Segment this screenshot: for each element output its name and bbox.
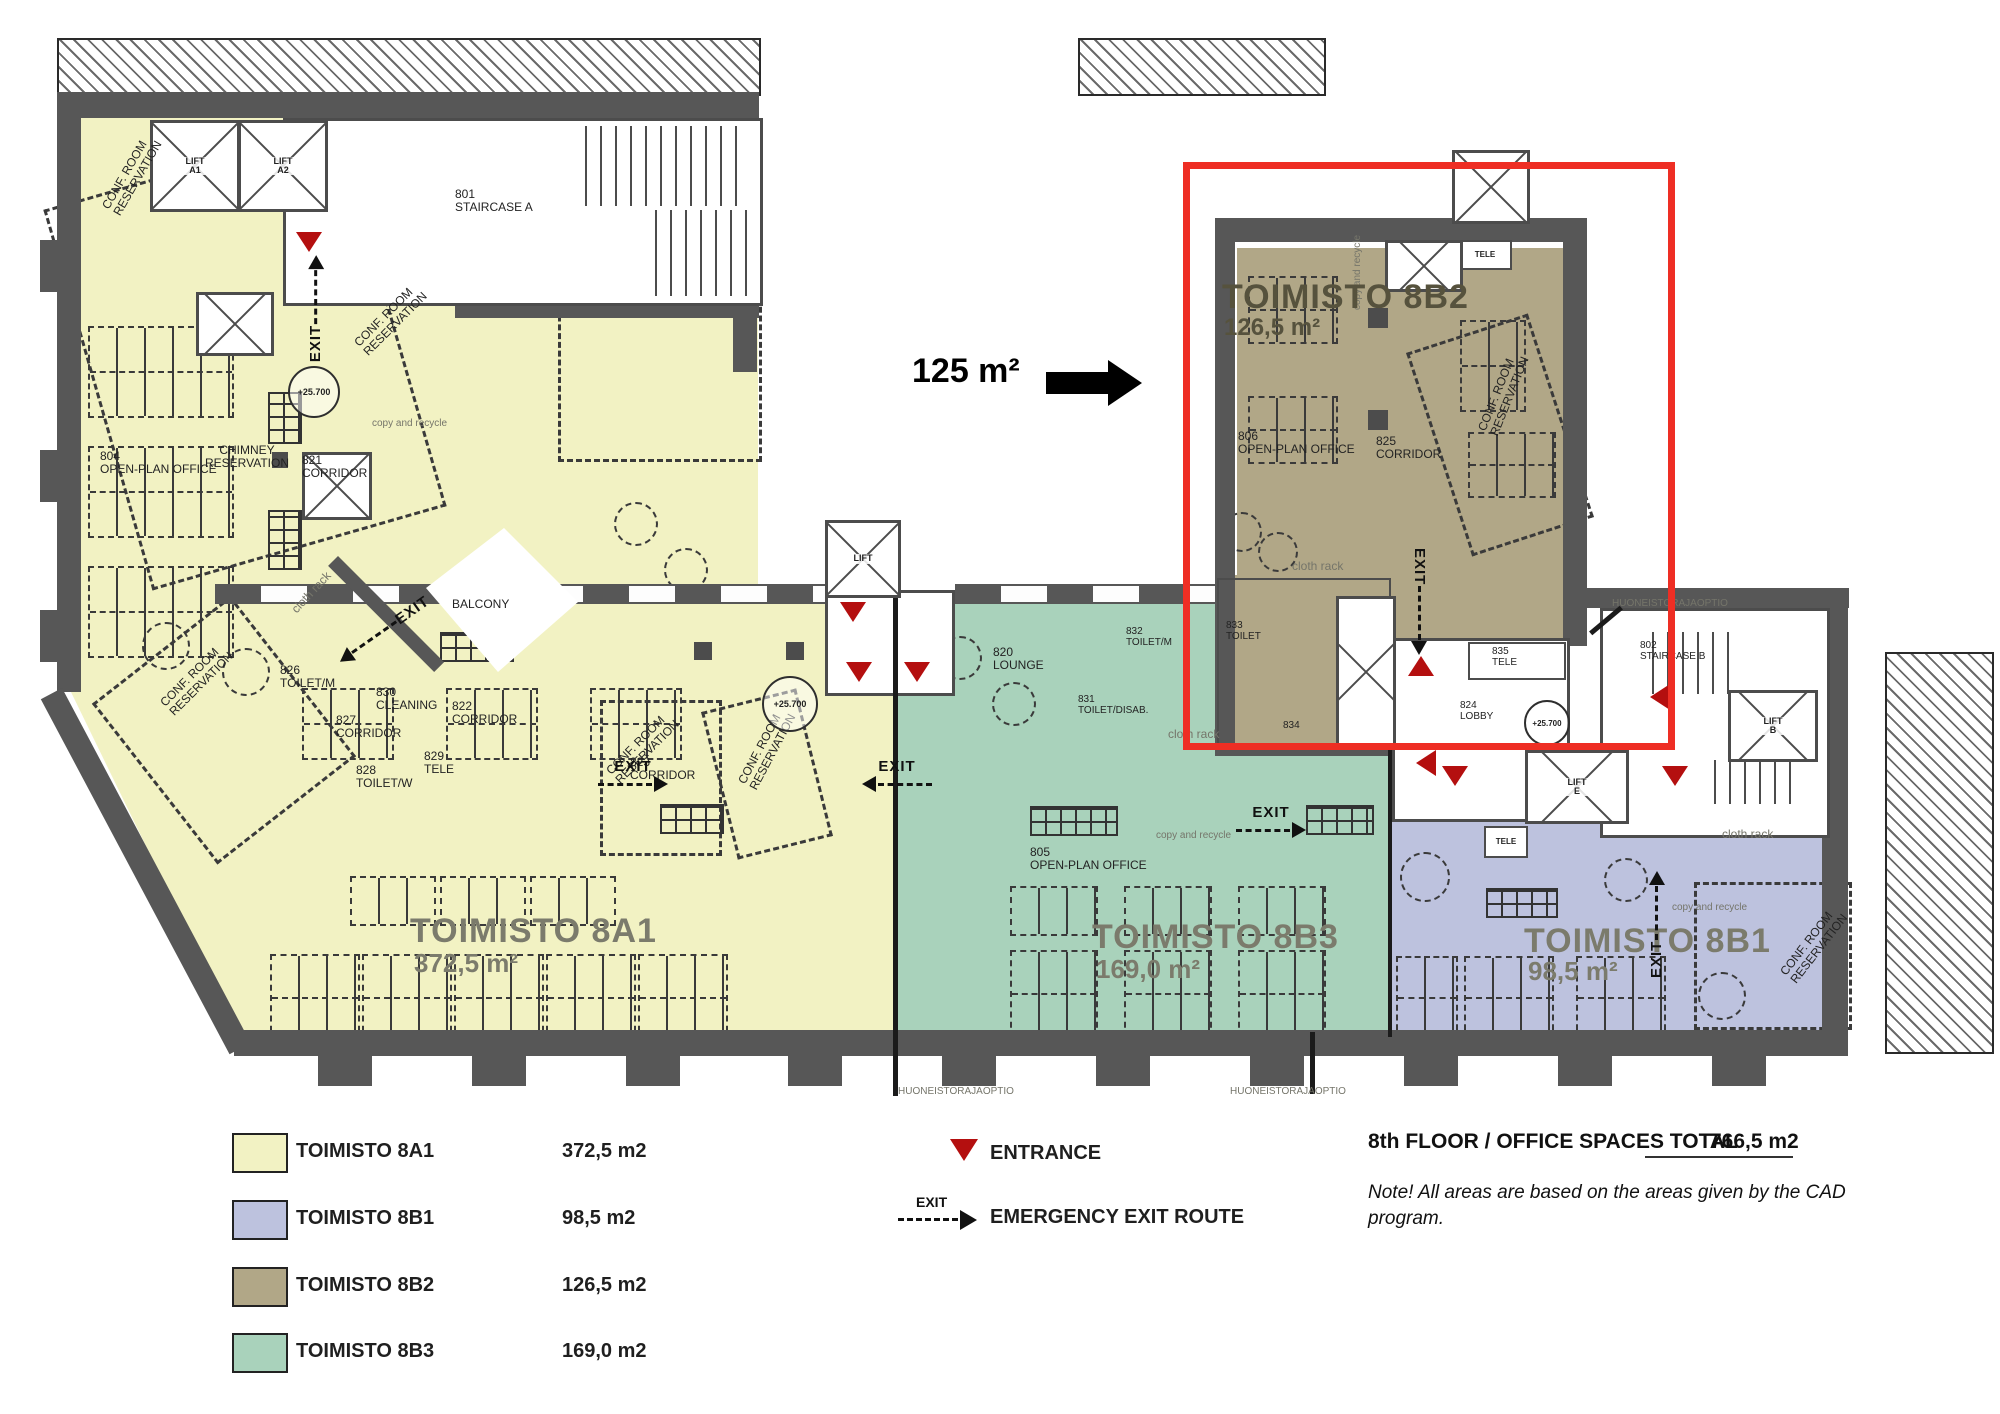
shelf: [1306, 805, 1374, 835]
entrance-marker: [904, 662, 930, 682]
exit-label: EXIT: [614, 758, 651, 775]
pillar: [40, 610, 70, 662]
shelf: [1486, 888, 1558, 918]
lift-a2-shaft: LIFT A2: [238, 120, 328, 212]
desk-cluster: [270, 954, 360, 1042]
copy-recycle-label: copy and recycle: [372, 418, 447, 429]
round-table: [1400, 852, 1450, 902]
desk-cluster: [1396, 956, 1458, 1040]
room-label-832: 832 TOILET/M: [1126, 626, 1172, 648]
stairs: [585, 126, 745, 206]
legend-area-8b1: 98,5 m2: [562, 1207, 635, 1230]
exit-dash: [1236, 829, 1290, 832]
boundary-label: HUONEISTORAJAOPTIO: [898, 1086, 1014, 1097]
lift-e-shaft: LIFT E: [1525, 750, 1629, 824]
room-label-828: 828 TOILET/W: [356, 764, 412, 791]
zone-8b3-area: 169,0 m²: [1096, 954, 1200, 985]
zone-8a1-area: 372,5 m²: [414, 948, 518, 979]
room-label-805: 805 OPEN-PLAN OFFICE: [1030, 846, 1147, 873]
exit-arrowhead-icon: [1649, 871, 1665, 885]
room-label-826: 826 TOILET/M: [280, 664, 335, 691]
room-label-820: 820 LOUNGE: [993, 646, 1044, 673]
shaft: [196, 292, 274, 356]
neighbor-hatch-top-left: [57, 38, 761, 96]
exit-arrowhead-icon: [308, 255, 324, 269]
pillar: [626, 1056, 680, 1086]
highlight-rectangle: [1183, 162, 1675, 750]
round-table: [1698, 972, 1746, 1020]
copy-recycle-label: copy and recycle: [1156, 830, 1231, 841]
pillar: [942, 1056, 996, 1086]
stairs: [1714, 760, 1794, 804]
entrance-marker: [1416, 750, 1436, 776]
round-table: [1604, 858, 1648, 902]
room-label-804: 804 OPEN-PLAN OFFICE: [100, 450, 217, 477]
desk-cluster: [546, 954, 636, 1042]
exit-marker: EXIT: [1648, 871, 1665, 978]
lift-a1-shaft: LIFT A1: [150, 120, 240, 212]
legend-exit-arrowhead-icon: [960, 1210, 977, 1230]
annotation-arrowhead-icon: [1108, 360, 1142, 406]
lift-label: LIFT: [828, 523, 898, 595]
room-label-821: 821 CORRIDOR: [302, 454, 367, 481]
exit-dash: [314, 270, 317, 324]
legend-swatch-8b3: [232, 1333, 288, 1373]
summary-note: Note! All areas are based on the areas g…: [1368, 1180, 1846, 1231]
pillar: [318, 1056, 372, 1086]
entrance-marker: [296, 232, 322, 252]
lift-a1-label: LIFT A1: [153, 123, 237, 209]
exit-marker: EXIT: [1236, 804, 1306, 838]
shelf: [1030, 806, 1118, 836]
wall: [57, 92, 759, 118]
zone-8b3-name: TOIMISTO 8B3: [1092, 918, 1339, 957]
room-label-830: 830 CLEANING: [376, 686, 437, 713]
cloth-rack-label: cloth rack: [1722, 828, 1773, 841]
neighbor-hatch-right: [1885, 652, 1994, 1054]
room-label-801: 801 STAIRCASE A: [455, 188, 533, 215]
zone-8a1-name: TOIMISTO 8A1: [410, 912, 657, 951]
boundary-label: HUONEISTORAJAOPTIO: [1230, 1086, 1346, 1097]
exit-dash: [598, 783, 652, 786]
desk-cluster: [1238, 950, 1326, 1038]
exit-marker: EXIT: [598, 758, 668, 792]
exit-arrowhead-icon: [1292, 822, 1306, 838]
round-table: [142, 622, 190, 670]
legend-area-8b2: 126,5 m2: [562, 1274, 647, 1297]
window-wall: [955, 584, 1217, 604]
desk-cluster: [638, 954, 728, 1042]
entrance-marker: [846, 662, 872, 682]
room-label-balcony: BALCONY: [452, 598, 509, 611]
legend-exit-symbol: EXIT: [916, 1194, 947, 1210]
exit-label: EXIT: [1252, 804, 1289, 821]
legend-swatch-8b2: [232, 1267, 288, 1307]
exit-arrowhead-icon: [862, 776, 876, 792]
pillar: [472, 1056, 526, 1086]
room-label-827: 827 CORRIDOR: [336, 714, 401, 741]
exit-label: EXIT: [1648, 941, 1665, 978]
pillar: [1558, 1056, 1612, 1086]
entrance-marker: [1442, 766, 1468, 786]
unit-boundary-line: [893, 596, 898, 1096]
unit-boundary-line: [1388, 745, 1392, 1037]
legend-swatch-8a1: [232, 1133, 288, 1173]
tele-room: TELE: [1484, 826, 1528, 858]
round-table: [614, 502, 658, 546]
room-label-829: 829 TELE: [424, 750, 454, 777]
pillar: [788, 1056, 842, 1086]
shelf: [660, 804, 724, 834]
desk-cluster: [1010, 950, 1098, 1038]
unit-boundary-line: [1310, 1032, 1315, 1094]
service-point: [694, 642, 712, 660]
pillar: [1096, 1056, 1150, 1086]
legend-label-8a1: TOIMISTO 8A1: [296, 1140, 434, 1163]
zone-8b1-area: 98,5 m²: [1528, 956, 1618, 987]
level-marker: +25.700: [762, 676, 818, 732]
desk-cluster: [1010, 886, 1098, 936]
exit-label: EXIT: [307, 325, 324, 362]
legend-exit-dash: [898, 1218, 958, 1221]
legend-emergency-label: EMERGENCY EXIT ROUTE: [990, 1206, 1244, 1229]
legend-entrance-label: ENTRANCE: [990, 1142, 1101, 1165]
level-marker: +25.700: [288, 366, 340, 418]
exit-label: EXIT: [878, 758, 915, 775]
room-label-chimney: CHIMNEY RESERVATION: [205, 444, 289, 471]
round-table: [992, 682, 1036, 726]
exit-dash: [1655, 886, 1658, 940]
tele-label: TELE: [1486, 828, 1526, 856]
lift-b-shaft: LIFT B: [1728, 690, 1818, 762]
pillar: [1404, 1056, 1458, 1086]
legend-label-8b3: TOIMISTO 8B3: [296, 1340, 434, 1363]
room-label-822: 822 CORRIDOR: [452, 700, 517, 727]
stairs: [655, 210, 755, 296]
entrance-marker: [1662, 766, 1688, 786]
annotation-arrow-icon: [1046, 372, 1108, 394]
copy-recycle-label: copy and recycle: [1672, 902, 1747, 913]
neighbor-hatch-top-right: [1078, 38, 1326, 96]
exit-arrowhead-icon: [654, 776, 668, 792]
legend-label-8b2: TOIMISTO 8B2: [296, 1274, 434, 1297]
central-lift-shaft: LIFT: [825, 520, 901, 598]
pillar: [40, 240, 70, 292]
room-label-831: 831 TOILET/DISAB.: [1078, 694, 1148, 716]
pillar: [1712, 1056, 1766, 1086]
wall: [234, 1030, 1848, 1056]
reservation-zone: [558, 298, 762, 462]
legend-swatch-8b1: [232, 1200, 288, 1240]
summary-underline: [1645, 1134, 1793, 1158]
legend-area-8a1: 372,5 m2: [562, 1140, 647, 1163]
shelf: [268, 510, 302, 570]
pillar: [1250, 1056, 1304, 1086]
annotation-area-label: 125 m²: [912, 352, 1020, 391]
lift-e-label: LIFT E: [1528, 753, 1626, 821]
lift-a2-label: LIFT A2: [241, 123, 325, 209]
entrance-marker: [840, 602, 866, 622]
service-point: [786, 642, 804, 660]
legend-area-8b3: 169,0 m2: [562, 1340, 647, 1363]
exit-marker: EXIT: [862, 758, 932, 792]
lift-b-label: LIFT B: [1731, 693, 1815, 759]
exit-marker: EXIT: [307, 255, 324, 362]
wall: [57, 92, 81, 692]
exit-dash: [878, 783, 932, 786]
legend-entrance-icon: [950, 1139, 978, 1161]
floor-plan: LIFT A1 LIFT A2 LIFT LIFT E TELE LIFT B …: [0, 0, 2000, 1414]
legend-label-8b1: TOIMISTO 8B1: [296, 1207, 434, 1230]
pillar: [40, 450, 70, 502]
